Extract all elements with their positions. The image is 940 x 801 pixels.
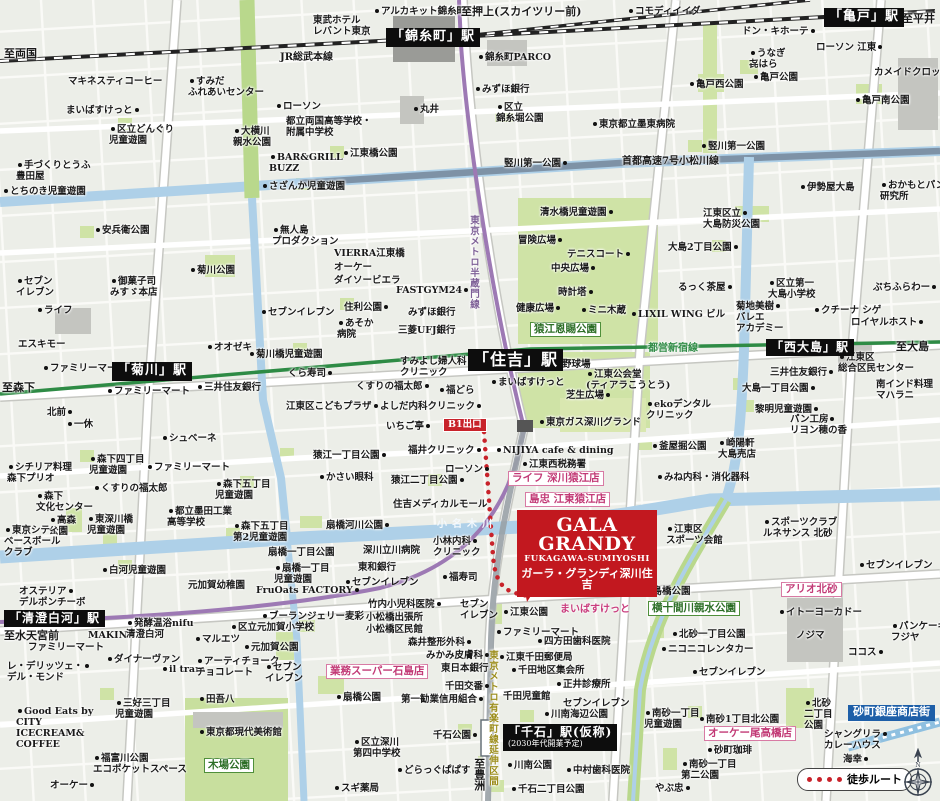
poi-label: 菊川公園	[189, 265, 235, 276]
poi-dot	[658, 475, 662, 479]
poi-dot	[271, 155, 275, 159]
poi-label: うなぎ㐂はら	[749, 48, 786, 70]
poi-dot	[540, 420, 544, 424]
poi-dot	[460, 478, 464, 482]
poi-label: ドン・キホーテ	[742, 26, 817, 37]
poi-dot	[477, 448, 481, 452]
poi-label: スポーツクラブルネサンス 北砂	[763, 517, 837, 539]
poi-dot	[609, 210, 613, 214]
poi-label: 扇橋一丁目児童遊園	[274, 563, 330, 585]
poi-label: 竹内小児科医院	[368, 599, 443, 610]
poi-label: 田吾八	[198, 694, 235, 705]
poi-label: コモディイイダ	[627, 6, 700, 17]
poi-dot	[355, 588, 359, 592]
poi-label: 伊勢屋大島	[799, 182, 855, 193]
poi-label: 冒険広場	[518, 235, 564, 246]
poi-label: 元加賀幼稚園	[188, 580, 245, 591]
poi-dot	[893, 624, 897, 628]
poi-dot	[148, 465, 152, 469]
poi-label: 芝生広場	[566, 390, 612, 401]
poi-label: 四方田歯科医院	[536, 636, 611, 647]
poi-label: 深川立川病院	[363, 545, 420, 556]
store-label: 業務スーパー石島店	[326, 664, 428, 679]
poi-label: 江東区立大島防災公園	[703, 208, 760, 230]
store-label: まいばすけっと	[560, 604, 630, 616]
poi-dot	[734, 245, 738, 249]
poi-label: 北砂二丁目公園	[804, 698, 833, 731]
poi-label: カメイドクロック	[874, 67, 940, 78]
poi-dot	[18, 163, 22, 167]
poi-label: 北砂一丁目公園	[671, 629, 746, 640]
poi-dot	[500, 655, 504, 659]
site-name-en: GALA GRANDY	[520, 516, 654, 554]
poi-dot	[38, 494, 42, 498]
poi-label: クチーナ シゲ	[813, 305, 881, 316]
poi-dot	[108, 389, 112, 393]
poi-dot	[492, 380, 496, 384]
route-dot-icon	[827, 777, 832, 782]
poi-label: 発酵温浴nifu清澄白河	[126, 618, 194, 640]
poi-label: セブンイレブン	[563, 698, 630, 709]
poi-label: 千田交番	[445, 681, 491, 692]
poi-dot	[473, 733, 477, 737]
poi-dot	[811, 29, 815, 33]
poi-label: 大島2丁目公園	[668, 242, 740, 253]
poi-dot	[95, 486, 99, 490]
poi-dot	[648, 402, 652, 406]
poi-label: どらっぐぱぱす	[396, 765, 471, 776]
poi-label: 時計塔	[558, 287, 595, 298]
poi-dot	[111, 127, 115, 131]
poi-dot	[263, 614, 267, 618]
poi-label: 扇橋公園	[335, 692, 381, 703]
poi-dot	[374, 404, 378, 408]
poi-dot	[538, 639, 542, 643]
poi-dot	[557, 682, 561, 686]
park-label: 横十間川親水公園	[648, 601, 740, 616]
poi-label: セブンイレブン	[858, 560, 933, 571]
poi-dot	[504, 610, 508, 614]
poi-label: オーケー	[50, 780, 96, 791]
poi-label: ココス	[848, 647, 885, 658]
poi-dot	[68, 410, 72, 414]
poi-label: Good Eats byCITYICECREAM&COFFEE	[16, 706, 93, 750]
poi-label: レ・デリッツェ・デル・モンド	[7, 661, 91, 683]
poi-label: ファミリーマート	[28, 642, 104, 653]
direction-label: 至豊洲	[472, 758, 485, 791]
poi-dot	[591, 266, 595, 270]
poi-label: ライフ	[36, 305, 73, 316]
poi-label: 川南海辺公園	[543, 709, 608, 720]
poi-dot	[686, 786, 690, 790]
poi-dot	[198, 659, 202, 663]
park-label: 木場公園	[204, 758, 254, 773]
poi-label: ファミリーマート	[106, 386, 190, 397]
poi-label: 扇橋河川公園	[326, 520, 391, 531]
poi-dot	[355, 740, 359, 744]
poi-label: マルエツ	[194, 634, 240, 645]
poi-label: 崎陽軒大島売店	[718, 438, 756, 460]
poi-label: 三井住友銀行	[196, 382, 261, 393]
poi-label: 都立墨田工業高等学校	[167, 506, 232, 528]
poi-dot	[512, 787, 516, 791]
poi-label: 手づくりとうふ豊田屋	[16, 160, 91, 182]
poi-dot	[385, 523, 389, 527]
poi-label: 小林内科クリニック	[433, 536, 481, 558]
poi-dot	[437, 602, 441, 606]
station-label: 「西大島」駅	[766, 339, 854, 356]
poi-dot	[497, 630, 501, 634]
poi-dot	[545, 712, 549, 716]
poi-dot	[443, 575, 447, 579]
poi-label: 清水橋児童遊園	[540, 207, 615, 218]
poi-dot	[108, 657, 112, 661]
poi-dot	[277, 104, 281, 108]
poi-dot	[563, 161, 567, 165]
poi-label: 無人島プロダクション	[272, 225, 339, 247]
poi-label: 釜屋掘公園	[651, 441, 707, 452]
poi-dot	[476, 87, 480, 91]
poi-label: 江東橋公園	[342, 148, 398, 159]
poi-dot	[754, 75, 758, 79]
poi-label: 住利公園	[344, 302, 390, 313]
poi-label: 福どら	[438, 385, 475, 396]
walk-route-label: 徒歩ルート	[847, 771, 902, 787]
poi-dot	[932, 285, 936, 289]
poi-dot	[567, 768, 571, 772]
poi-dot	[814, 407, 818, 411]
poi-label: くすりの福太郎	[93, 483, 168, 494]
poi-dot	[69, 589, 73, 593]
station-label: 「錦糸町」駅	[386, 28, 480, 47]
poi-dot	[479, 55, 483, 59]
poi-dot	[382, 453, 386, 457]
poi-dot	[276, 566, 280, 570]
poi-label: 江東区こどもプラザ	[286, 401, 380, 412]
poi-label: 南砂1丁目北公園	[698, 714, 779, 725]
poi-dot	[626, 252, 630, 256]
poi-dot	[18, 279, 22, 283]
poi-dot	[498, 105, 502, 109]
poi-label: 区立第一大島小学校	[768, 278, 816, 300]
poi-dot	[765, 520, 769, 524]
site-name-en-sub: FUKAGAWA-SUMIYOSHI	[520, 554, 654, 564]
poi-label: みずほ銀行	[408, 307, 456, 318]
poi-dot	[485, 467, 489, 471]
poi-label: 千田児童館	[503, 691, 551, 702]
poi-dot	[346, 580, 350, 584]
poi-dot	[751, 51, 755, 55]
river-label: 小名木川	[437, 519, 497, 531]
direction-label: 至平井	[902, 13, 935, 26]
store-label: 島忠 江東猿江店	[525, 492, 610, 507]
poi-label: すみだふれあいセンター	[188, 76, 264, 98]
poi-label: ダイソービエラ	[334, 275, 401, 286]
poi-label: 東京シティベースボールクラブ	[4, 525, 61, 558]
poi-label: ぷちふらわー	[873, 282, 938, 293]
poi-label: 海幸	[843, 754, 870, 765]
poi-dot	[163, 667, 167, 671]
poi-dot	[235, 524, 239, 528]
direction-label: 至両国	[4, 48, 37, 61]
poi-dot	[512, 668, 516, 672]
poi-label: 白河児童遊園	[101, 565, 166, 576]
site-name-jp: ガーラ・グランディ深川住吉	[520, 568, 654, 590]
station-label: 「清澄白河」駅	[4, 610, 105, 627]
poi-label: 御菓子司みすゞ本店	[110, 276, 158, 298]
poi-label: 区立元加賀小学校	[230, 622, 314, 633]
poi-label: 北前	[47, 407, 74, 418]
poi-dot	[267, 665, 271, 669]
poi-dot	[693, 670, 697, 674]
station-label: 「千石」駅(仮称)(2030年代開業予定)	[503, 724, 617, 751]
poi-dot	[883, 732, 887, 736]
poi-label: 川南公園	[506, 760, 552, 771]
poi-label: ファミリーマート	[146, 462, 230, 473]
poi-dot	[414, 107, 418, 111]
poi-dot	[780, 610, 784, 614]
poi-dot	[879, 650, 883, 654]
route-dot-icon	[817, 777, 822, 782]
poi-dot	[18, 709, 22, 713]
poi-dot	[6, 528, 10, 532]
poi-dot	[720, 441, 724, 445]
poi-dot	[232, 625, 236, 629]
subway-exit-badge: B1出口	[443, 418, 487, 432]
poi-dot	[426, 424, 430, 428]
poi-dot	[815, 308, 819, 312]
poi-label: 元加賀公園	[243, 642, 299, 653]
poi-label: NIJIYA cafe & dining	[495, 445, 614, 456]
poi-dot	[44, 366, 48, 370]
poi-dot	[830, 417, 834, 421]
poi-label: 東京都現代美術館	[198, 727, 282, 738]
poi-dot	[384, 305, 388, 309]
poi-label: ローソン 江東	[816, 42, 884, 53]
poi-label: アルカキット錦糸町	[373, 6, 466, 17]
poi-label: 千石公園	[433, 730, 479, 741]
poi-label: みかみ皮膚科	[426, 650, 491, 661]
poi-dot	[190, 79, 194, 83]
poi-label: 森下五丁目第2児童遊園	[233, 521, 289, 543]
poi-dot	[163, 436, 167, 440]
poi-label: いちご亭	[386, 421, 432, 432]
poi-label: BAR&GRILLBUZZ	[269, 152, 343, 174]
poi-label: 健康広場	[516, 303, 562, 314]
poi-dot	[96, 228, 100, 232]
poi-label: 区立どんぐり児童遊園	[109, 124, 174, 146]
poi-dot	[274, 228, 278, 232]
store-label: ライフ 深川猿江店	[508, 471, 604, 486]
poi-dot	[440, 388, 444, 392]
poi-label: 千石二丁目公園	[510, 784, 585, 795]
direction-label: 至押上(スカイツリー前)	[461, 6, 581, 19]
park-label: 猿江恩賜公園	[530, 322, 601, 337]
poi-label: ローソン	[275, 101, 321, 112]
poi-label: マキネスティコーヒー	[68, 76, 162, 87]
poi-label: スギ薬局	[333, 783, 379, 794]
poi-label: 大島一丁目公園	[742, 383, 817, 394]
poi-dot	[811, 386, 815, 390]
poi-label: 南砂一丁目児童遊園	[644, 708, 700, 730]
poi-label: 小松橋出張所	[366, 612, 423, 623]
poi-label: MAKIN	[88, 630, 127, 641]
poi-dot	[337, 695, 341, 699]
poi-label: LIXIL WING ビル	[630, 309, 725, 320]
station-label: 「住吉」駅	[468, 349, 563, 371]
poi-label: オオゼキ	[206, 342, 252, 353]
poi-dot	[776, 304, 780, 308]
poi-dot	[653, 444, 657, 448]
poi-label: 三菱UFJ銀行	[398, 325, 456, 336]
poi-label: 森下文化センター	[36, 491, 93, 513]
poi-label: 一休	[66, 419, 93, 430]
poi-dot	[90, 783, 94, 787]
poi-label: パンケーキフジヤ	[891, 621, 940, 643]
poi-dot	[508, 763, 512, 767]
poi-dot	[523, 462, 527, 466]
poi-dot	[668, 527, 672, 531]
poi-dot	[398, 768, 402, 772]
poi-label: ロイヤルホスト	[851, 317, 925, 328]
compass-rose-icon: N	[896, 748, 940, 800]
poi-dot	[245, 645, 249, 649]
poi-dot	[864, 757, 868, 761]
poi-dot	[801, 185, 805, 189]
poi-label: 竪川第一公園	[700, 141, 765, 152]
direction-label: 至森下	[2, 382, 35, 395]
poi-label: ニコニコレンタカー	[660, 644, 754, 655]
svg-text:N: N	[915, 762, 920, 769]
poi-label: ekoデンタルクリニック	[646, 399, 711, 421]
poi-dot	[200, 730, 204, 734]
poi-label: 東京ガス深川グランド	[538, 417, 641, 428]
poi-label: シチリア料理森下プリオ	[7, 462, 72, 484]
poi-dot	[335, 786, 339, 790]
poi-dot	[375, 9, 379, 13]
poi-label: セブンイレブン	[691, 667, 766, 678]
poi-dot	[208, 345, 212, 349]
poi-dot	[250, 352, 254, 356]
poi-label: 竪川第一公園	[504, 158, 569, 169]
store-label: オーケー尾高橋店	[704, 726, 796, 741]
poi-dot	[708, 748, 712, 752]
poi-dot	[700, 717, 704, 721]
poi-dot	[860, 563, 864, 567]
poi-label: ブーランジェリー麦彩	[261, 611, 364, 622]
poi-dot	[477, 404, 481, 408]
poi-dot	[556, 306, 560, 310]
map-canvas: 至両国マキネスティコーヒーすみだふれあいセンターまいばすけっと区立どんぐり児童遊…	[0, 0, 940, 801]
poi-dot	[9, 465, 13, 469]
poi-dot	[200, 697, 204, 701]
rail-line-label: 首都高速7号小松川線	[622, 156, 719, 168]
poi-label: シュベーネ	[161, 433, 217, 444]
poi-dot	[4, 189, 8, 193]
poi-dot	[117, 701, 121, 705]
poi-dot	[606, 393, 610, 397]
poi-dot	[629, 9, 633, 13]
poi-label: オステリアデルポンチーボ	[19, 586, 86, 608]
poi-label: 江東西税務署	[521, 459, 586, 470]
poi-label: 菊川橋児童遊園	[248, 349, 323, 360]
poi-label: よしだ内科クリニック	[380, 401, 483, 412]
poi-label: 第一勧業信用組合	[401, 694, 485, 705]
walk-route-legend: 徒歩ルート	[797, 768, 912, 791]
poi-label: 中央広場	[551, 263, 597, 274]
poi-label: VIERRA江東橋	[334, 248, 405, 259]
poi-label: 福寿司	[441, 572, 478, 583]
poi-label: すみよし婦人科クリニック	[400, 356, 467, 378]
poi-dot	[85, 664, 89, 668]
poi-dot	[196, 637, 200, 641]
poi-dot	[919, 320, 923, 324]
poi-dot	[632, 312, 636, 316]
poi-dot	[217, 482, 221, 486]
poi-label: 丸井	[412, 104, 439, 115]
poi-dot	[467, 640, 471, 644]
poi-label: 砂町珈琲	[706, 745, 752, 756]
poi-dot	[328, 371, 332, 375]
poi-label: セブンイレブン	[16, 276, 54, 298]
poi-dot	[103, 568, 107, 572]
station-label: 「亀戸」駅	[824, 8, 904, 27]
poi-dot	[743, 211, 747, 215]
poi-label: セブンイレブン	[260, 307, 335, 318]
poi-label: 福井クリニック	[408, 445, 483, 456]
poi-label: セブンイレブン	[460, 599, 498, 621]
poi-label: 東武ホテルレバント東京	[313, 15, 370, 37]
poi-label: 小松橋区民館	[366, 624, 423, 635]
poi-label: 東深川橋児童遊園	[87, 514, 133, 536]
poi-dot	[191, 268, 195, 272]
poi-label: 森下四丁目児童遊園	[89, 454, 145, 476]
poi-dot	[646, 711, 650, 715]
poi-dot	[112, 279, 116, 283]
poi-dot	[770, 281, 774, 285]
poi-dot	[198, 385, 202, 389]
station-label: 「菊川」駅	[112, 362, 192, 381]
poi-dot	[882, 183, 886, 187]
poi-dot	[582, 308, 586, 312]
poi-dot	[135, 108, 139, 112]
poi-dot	[262, 310, 266, 314]
poi-dot	[690, 82, 694, 86]
poi-label: とちのき児童遊園	[2, 186, 86, 197]
poi-label: 千田地区集会所	[510, 665, 585, 676]
poi-dot	[558, 238, 562, 242]
poi-dot	[169, 509, 173, 513]
poi-dot	[425, 384, 429, 388]
poi-dot	[806, 701, 810, 705]
poi-dot	[320, 475, 324, 479]
poi-dot	[344, 151, 348, 155]
poi-label: ミニ木蔵	[580, 305, 626, 316]
rail-line-label: 都営新宿線	[648, 343, 698, 355]
poi-label: 江東公園	[502, 607, 548, 618]
poi-label: ノジマ	[796, 630, 825, 641]
poi-label: まいばすけっと	[66, 105, 141, 116]
poi-dot	[68, 422, 72, 426]
shopping-street-label: 砂町銀座商店街	[848, 705, 935, 721]
poi-label: 区立深川第四中学校	[353, 737, 401, 759]
poi-label: やぶ忠	[655, 783, 692, 794]
poi-label: まいばすけっと	[490, 377, 565, 388]
poi-dot	[856, 98, 860, 102]
poi-label: みね内科・消化器科	[656, 472, 750, 483]
poi-label: イトーヨーカドー	[778, 607, 862, 618]
poi-label: 江東千田郵便局	[498, 652, 573, 663]
